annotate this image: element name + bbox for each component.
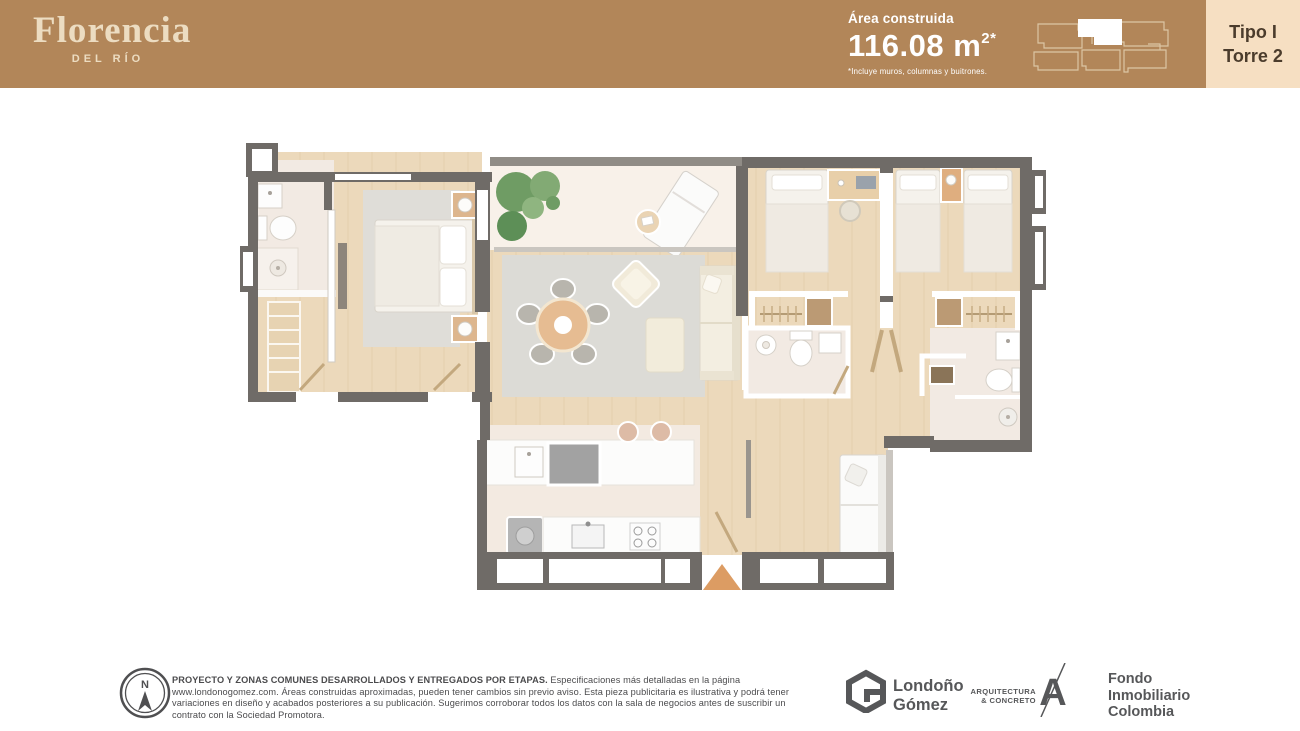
window <box>335 174 411 180</box>
washer-icon <box>507 517 543 554</box>
balcony-glass <box>494 247 742 252</box>
floor-plan <box>0 0 1300 731</box>
window <box>665 559 690 583</box>
window <box>824 559 886 583</box>
single-bed-icon <box>964 170 1012 272</box>
disclaimer-bold: PROYECTO Y ZONAS COMUNES DESARROLLADOS Y… <box>172 675 548 685</box>
sliding-door <box>328 210 335 362</box>
north-compass-icon: N <box>118 666 172 720</box>
master-bed-icon <box>375 218 478 314</box>
single-bed-icon <box>896 170 940 272</box>
toilet-icon <box>986 368 1020 392</box>
sink-icon <box>996 332 1020 360</box>
window <box>549 559 661 583</box>
console-icon <box>746 440 751 518</box>
window <box>252 149 272 171</box>
bar-stool-icon <box>651 422 671 442</box>
toilet-icon <box>790 331 812 366</box>
compass-letter: N <box>141 679 149 691</box>
balcony-door-gap <box>477 190 488 240</box>
toilet-icon <box>258 216 296 240</box>
window <box>243 252 253 286</box>
den-glass <box>886 450 893 554</box>
dining-table-icon <box>537 299 589 351</box>
side-table-icon <box>636 210 660 234</box>
living-dining <box>502 255 740 397</box>
balcony-rail <box>490 157 742 166</box>
window <box>497 559 543 583</box>
arquitectura-concreto-wordmark: ARQUITECTURA & CONCRETO <box>962 687 1036 705</box>
fridge-icon <box>548 443 600 485</box>
room-divider <box>880 166 893 302</box>
kitchen-sink-icon <box>572 522 604 549</box>
bar-stool-icon <box>618 422 638 442</box>
tv-console <box>338 243 347 309</box>
flyer-page: Florencia DEL RÍO Área construida 116.08… <box>0 0 1300 731</box>
entrance-arrow <box>703 564 741 590</box>
window <box>1035 232 1043 284</box>
sofa-icon <box>700 266 740 380</box>
kitchen-counter <box>543 517 700 554</box>
shower-icon <box>999 408 1017 426</box>
bath-cabinet-icon <box>819 333 841 353</box>
coffee-ottoman-icon <box>646 318 684 372</box>
sink-icon <box>258 184 282 208</box>
shower-icon <box>256 248 298 290</box>
londono-gomez-logo-icon <box>845 669 887 713</box>
desk-icon <box>828 170 880 200</box>
window <box>1035 176 1043 208</box>
door-gap <box>296 392 338 402</box>
desk-chair-icon <box>840 201 860 221</box>
window <box>760 559 818 583</box>
londono-gomez-wordmark: Londoño Gómez <box>893 677 964 715</box>
laundry-sink-icon <box>515 447 543 477</box>
door-gap <box>428 392 472 402</box>
nightstand-icon <box>941 168 962 202</box>
vanity-drawer-icon <box>930 366 954 384</box>
arquitectura-concreto-logo-icon: A <box>1038 663 1068 717</box>
legal-disclaimer: PROYECTO Y ZONAS COMUNES DESARROLLADOS Y… <box>172 675 822 721</box>
svg-text:A: A <box>1039 672 1066 714</box>
den-sofa-icon <box>840 455 886 555</box>
single-bed-icon <box>766 170 828 272</box>
stove-icon <box>630 523 660 550</box>
door-panel <box>478 312 487 342</box>
fondo-inmobiliario-wordmark: Fondo Inmobiliario Colombia <box>1108 671 1190 721</box>
sink-icon <box>756 335 776 355</box>
